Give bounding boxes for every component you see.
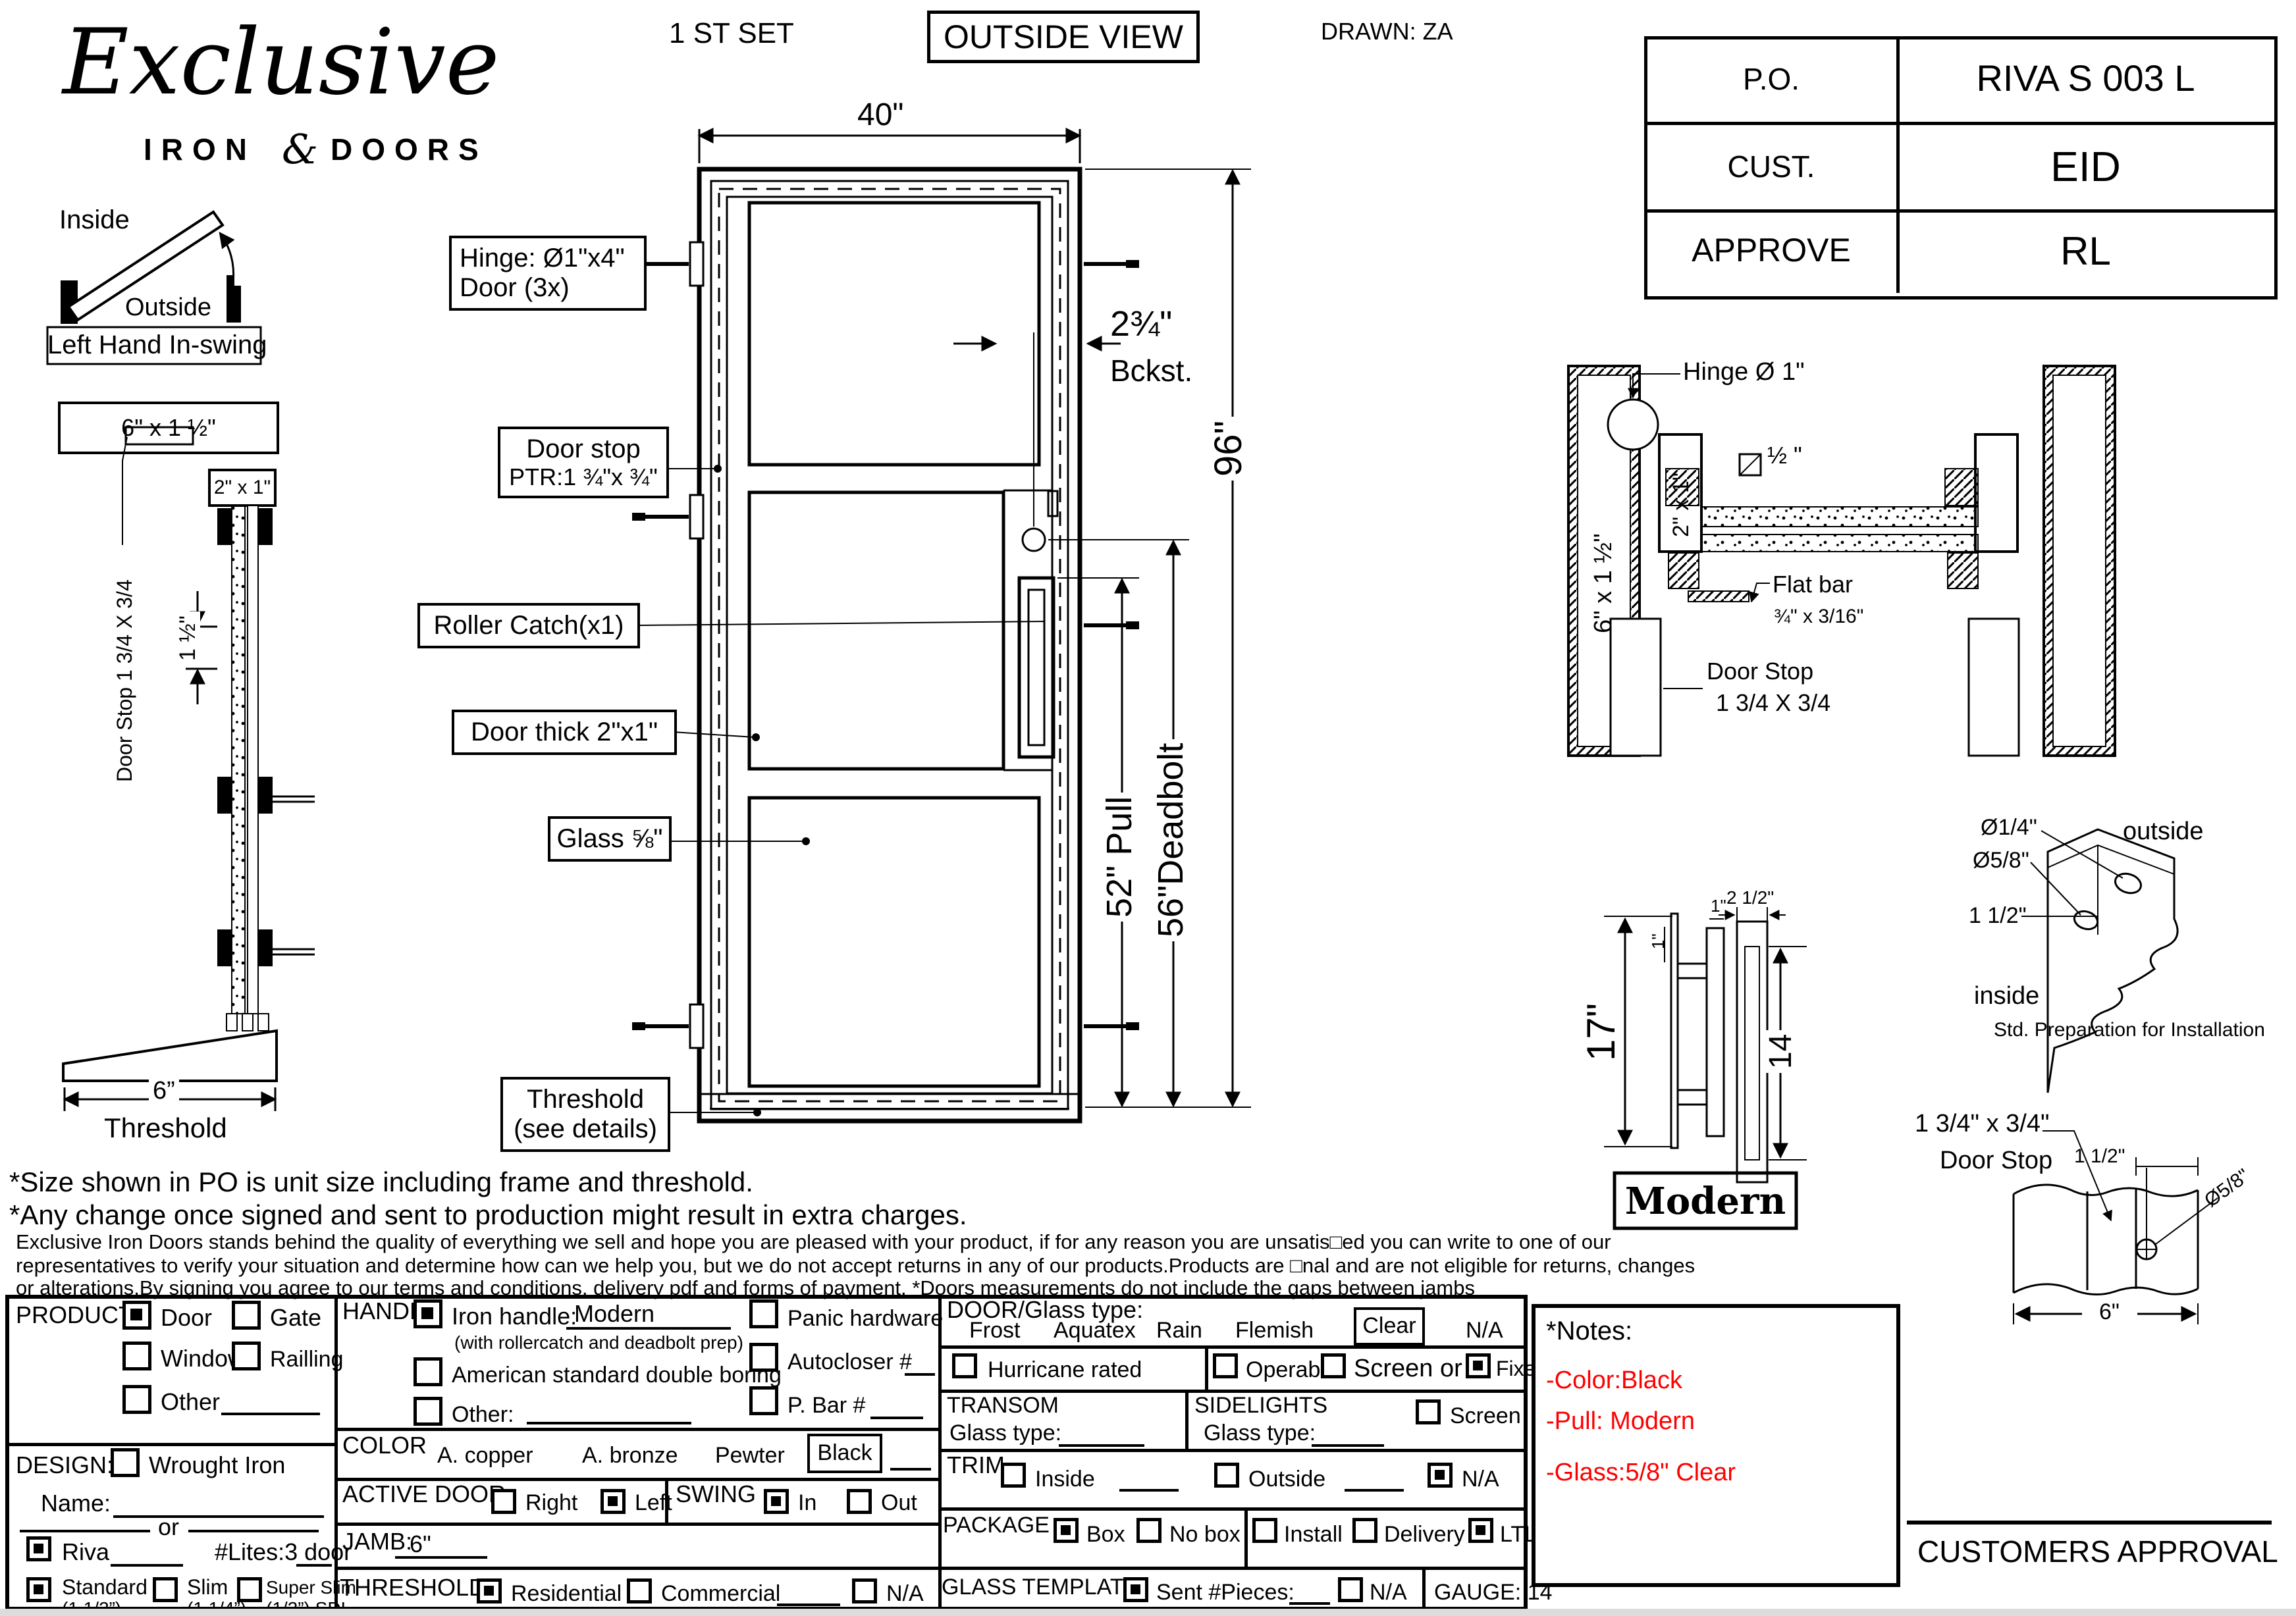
doorglass-na-option[interactable]: N/A xyxy=(1466,1318,1503,1343)
outside-view-label: OUTSIDE VIEW xyxy=(930,14,1196,60)
handle-american-checkbox[interactable] xyxy=(414,1357,442,1386)
activedoor-left-label: Left xyxy=(635,1490,672,1515)
threshold-residential-checkbox[interactable] xyxy=(477,1578,502,1603)
trim-inside-checkbox[interactable] xyxy=(1001,1463,1026,1488)
design-lites-input-line[interactable] xyxy=(296,1564,332,1567)
package-box-label: Box xyxy=(1086,1522,1125,1547)
product-other-label: Other xyxy=(161,1389,220,1415)
door-deadbolt-dim: 56"Deadbolt xyxy=(1151,739,1190,941)
design-riva-input-line[interactable] xyxy=(111,1564,183,1567)
note-glass: -Glass:5/8" Clear xyxy=(1546,1459,1736,1487)
product-railing-checkbox[interactable] xyxy=(232,1342,261,1370)
package-title: PACKAGE xyxy=(943,1513,1050,1538)
handle-width-dim: 2 1/2" xyxy=(1726,887,1774,908)
door-width-dim: 40" xyxy=(853,97,907,133)
logo-ampersand-icon: & xyxy=(282,126,318,172)
trim-outside-input-line[interactable] xyxy=(1345,1489,1404,1492)
approve-value: RL xyxy=(1903,229,2268,273)
design-name-input-line[interactable] xyxy=(113,1515,324,1518)
handle-iron-value[interactable]: Modern xyxy=(574,1301,654,1327)
install-dim-quarter: Ø1/4" xyxy=(1981,815,2037,840)
door-elevation-drawing xyxy=(632,129,1251,1121)
form-line xyxy=(938,1567,1528,1570)
color-pewter-option[interactable]: Pewter xyxy=(715,1443,785,1468)
handle-iron-note: (with rollercatch and deadbolt prep) xyxy=(454,1332,743,1353)
hinge-label-2: Door (3x) xyxy=(460,273,636,303)
door-backset-label: Bckst. xyxy=(1110,354,1192,388)
left-doorstop-label: Door Stop 1 3/4 X 3/4 xyxy=(113,579,137,782)
door-backset-dim: 2¾" xyxy=(1110,304,1172,344)
disclaimer-line3: Exclusive Iron Doors stands behind the q… xyxy=(16,1231,1611,1254)
design-riva-label: Riva xyxy=(62,1539,109,1565)
activedoor-left-checkbox[interactable] xyxy=(601,1489,626,1514)
doorglass-aquatex-option[interactable]: Aquatex xyxy=(1054,1318,1136,1343)
swing-outside-label: Outside xyxy=(125,294,211,322)
handle-autocloser-checkbox[interactable] xyxy=(749,1343,778,1372)
product-railing-label: Railling xyxy=(270,1347,344,1372)
trim-inside-input-line[interactable] xyxy=(1119,1489,1179,1492)
roller-label: Roller Catch(x1) xyxy=(424,611,633,640)
install-inside-label: inside xyxy=(1974,982,2039,1010)
doorglass-flemish-option[interactable]: Flemish xyxy=(1235,1318,1314,1343)
product-door-label: Door xyxy=(161,1305,212,1331)
hinge-label-1: Hinge: Ø1"x4" xyxy=(460,244,636,273)
handle-pbar-checkbox[interactable] xyxy=(749,1386,778,1415)
form-line xyxy=(1422,1567,1426,1611)
handle-other-checkbox[interactable] xyxy=(414,1397,442,1426)
jamb-input-line[interactable] xyxy=(395,1556,487,1559)
handle-iron-label: Iron handle: xyxy=(452,1303,577,1330)
glasstemplate-sent-checkbox[interactable] xyxy=(1123,1577,1148,1602)
install-outside-label: outside xyxy=(2123,818,2204,846)
doorstop-label-2: PTR:1 ¾"x ¾" xyxy=(504,464,662,490)
notes-title: *Notes: xyxy=(1546,1316,1632,1346)
transom-glass-input-line[interactable] xyxy=(1059,1444,1144,1447)
logo-iron: IRON xyxy=(144,133,256,167)
handle-autocloser-label: Autocloser # xyxy=(788,1349,912,1374)
outside-view-box: OUTSIDE VIEW xyxy=(927,11,1200,63)
swing-in-checkbox[interactable] xyxy=(764,1489,789,1514)
note-color: -Color:Black xyxy=(1546,1367,1682,1395)
handle-name: Modern xyxy=(1615,1181,1796,1222)
doorglass-selected-label: Clear xyxy=(1356,1310,1422,1342)
jamb-doorstop-label: Door Stop xyxy=(1707,658,1813,685)
threshold-label-1: Threshold xyxy=(507,1085,664,1114)
trim-inside-label: Inside xyxy=(1035,1467,1095,1492)
door-pull-dim: 52" Pull xyxy=(1100,793,1139,922)
stopdetail-name: Door Stop xyxy=(1940,1147,2052,1175)
stopdetail-size: 1 3/4" x 3/4" xyxy=(1915,1110,2049,1138)
po-table-line xyxy=(1896,36,1900,293)
po-value: RIVA S 003 L xyxy=(1903,58,2268,99)
design-standard-checkbox[interactable] xyxy=(26,1577,51,1602)
handle-height-dim: 17" xyxy=(1579,999,1623,1065)
screen-or-label: Screen or xyxy=(1354,1355,1462,1383)
hinge-label-box: Hinge: Ø1"x4" Door (3x) xyxy=(449,236,647,311)
product-door-checkbox[interactable] xyxy=(122,1301,151,1330)
note-pull: -Pull: Modern xyxy=(1546,1407,1695,1436)
trim-outside-checkbox[interactable] xyxy=(1214,1463,1239,1488)
left-threshold-caption: Threshold xyxy=(104,1112,227,1143)
threshold-title: THRESHOLD xyxy=(340,1575,486,1601)
package-nobox-checkbox[interactable] xyxy=(1136,1518,1161,1543)
package-delivery-checkbox[interactable] xyxy=(1352,1518,1377,1543)
threshold-commercial-label: Commercial xyxy=(661,1581,780,1606)
color-selected-label: Black xyxy=(810,1436,880,1469)
thick-label-box: Door thick 2"x1" xyxy=(452,710,677,755)
product-title: PRODUCT: xyxy=(16,1302,137,1328)
jamb-title: JAMB: xyxy=(342,1528,412,1555)
package-delivery-label: Delivery xyxy=(1384,1522,1465,1547)
fixed-checkbox[interactable] xyxy=(1466,1353,1491,1378)
approve-label: APPROVE xyxy=(1653,232,1890,269)
doorglass-rain-option[interactable]: Rain xyxy=(1156,1318,1202,1343)
design-riva-checkbox[interactable] xyxy=(26,1536,51,1561)
thick-label: Door thick 2"x1" xyxy=(458,717,670,747)
handle-iron-checkbox[interactable] xyxy=(414,1299,442,1328)
left-header-size: 6" x 1 ½" xyxy=(59,415,278,441)
package-install-checkbox[interactable] xyxy=(1252,1518,1277,1543)
sidelights-screen-checkbox[interactable] xyxy=(1416,1399,1441,1424)
jamb-flatbar-size: ¾" x 3/16" xyxy=(1774,606,1863,628)
trim-na-checkbox[interactable] xyxy=(1428,1463,1453,1488)
disclaimer-line1: *Size shown in PO is unit size including… xyxy=(9,1166,753,1197)
drawn-label: DRAWN: ZA xyxy=(1321,18,1453,45)
threshold-label-box: Threshold (see details) xyxy=(500,1077,670,1152)
swing-inside-label: Inside xyxy=(59,205,130,235)
color-input-line[interactable] xyxy=(890,1468,931,1471)
install-dim-oneandhalf: 1 1/2" xyxy=(1969,903,2027,928)
glasstemplate-sent-label: Sent #Pieces: xyxy=(1156,1580,1295,1605)
swing-caption: Left Hand In-swing xyxy=(47,330,261,360)
threshold-residential-label: Residential xyxy=(511,1581,622,1606)
product-gate-label: Gate xyxy=(270,1305,321,1331)
jamb-size-label: 6" x 1 ½" xyxy=(1589,533,1618,633)
form-line xyxy=(938,1507,1528,1511)
handle-autocloser-input-line[interactable] xyxy=(905,1373,935,1376)
package-install-label: Install xyxy=(1284,1522,1343,1547)
design-or-line xyxy=(20,1530,150,1532)
glasstemplate-input-line[interactable] xyxy=(1289,1602,1330,1605)
design-standard-label: Standard xyxy=(62,1576,147,1600)
design-superslim-checkbox[interactable] xyxy=(237,1577,262,1602)
door-height-dim: 96" xyxy=(1208,417,1250,481)
doorstop-label-box: Door stop PTR:1 ¾"x ¾" xyxy=(498,427,669,498)
handle-panic-checkbox[interactable] xyxy=(749,1299,778,1328)
jamb-value[interactable]: 6" xyxy=(410,1531,431,1557)
product-window-checkbox[interactable] xyxy=(122,1342,151,1370)
form-line xyxy=(1185,1390,1188,1449)
package-box-checkbox[interactable] xyxy=(1054,1518,1079,1543)
package-ltl-checkbox[interactable] xyxy=(1468,1518,1493,1543)
sidelights-title: SIDELIGHTS xyxy=(1194,1393,1327,1418)
po-table-line xyxy=(1644,122,2274,125)
door-spec-sheet: Exclusive IRON & DOORS 1 ST SET OUTSIDE … xyxy=(0,0,2296,1616)
install-dim-fiveeighth: Ø5/8" xyxy=(1973,848,2029,873)
form-line xyxy=(938,1295,942,1611)
form-line xyxy=(334,1523,938,1526)
form-line xyxy=(1244,1507,1248,1567)
design-or-label: or xyxy=(158,1514,179,1540)
doorglass-selected-box[interactable]: Clear xyxy=(1354,1307,1425,1345)
product-gate-checkbox[interactable] xyxy=(232,1301,261,1330)
stopdetail-dim3: 6" xyxy=(2095,1299,2123,1324)
design-wrought-label: Wrought Iron xyxy=(149,1452,285,1478)
disclaimer-line2: *Any change once signed and sent to prod… xyxy=(9,1199,967,1230)
sidelights-glass-label: Glass type: xyxy=(1204,1421,1316,1446)
jamb-weld-label: ½ " xyxy=(1767,442,1802,469)
color-title: COLOR xyxy=(342,1432,427,1459)
left-gap-dim: 1 ½" xyxy=(175,612,200,665)
transom-glass-label: Glass type: xyxy=(949,1421,1061,1446)
customers-approval-label: CUSTOMERS APPROVAL xyxy=(1917,1535,2278,1569)
activedoor-right-label: Right xyxy=(525,1490,577,1515)
glass-label: Glass ⅝" xyxy=(554,824,665,854)
glasstemplate-na-label: N/A xyxy=(1370,1580,1407,1605)
swing-out-checkbox[interactable] xyxy=(847,1489,872,1514)
disclaimer-line4: representatives to verify your situation… xyxy=(16,1255,1695,1278)
design-or-line xyxy=(188,1530,319,1532)
left-tube-size: 2" x 1" xyxy=(209,477,275,499)
doorstop-label-1: Door stop xyxy=(504,434,662,464)
po-table-line xyxy=(1644,209,2274,213)
handle-panic-label: Panic hardware xyxy=(788,1306,943,1331)
color-bronze-option[interactable]: A. bronze xyxy=(582,1443,678,1468)
swing-title: SWING xyxy=(676,1481,756,1507)
jamb-flatbar-label: Flat bar xyxy=(1773,571,1853,598)
form-line xyxy=(334,1428,938,1431)
threshold-commercial-input-line[interactable] xyxy=(777,1603,840,1606)
design-lites-label: #Lites:3 door xyxy=(215,1539,352,1565)
po-label: P.O. xyxy=(1653,63,1890,97)
transom-title: TRANSOM xyxy=(947,1393,1059,1418)
color-selected-box[interactable]: Black xyxy=(807,1434,882,1473)
handle-grip-dim: 14 xyxy=(1763,1030,1799,1073)
jamb-hinge-label: Hinge Ø 1" xyxy=(1683,358,1805,386)
roller-label-box: Roller Catch(x1) xyxy=(417,603,640,648)
form-line xyxy=(938,1345,1528,1349)
glasstemplate-title: GLASS TEMPLATE xyxy=(942,1575,1138,1600)
design-name-label: Name: xyxy=(41,1490,111,1517)
threshold-na-label: N/A xyxy=(886,1581,924,1606)
product-other-checkbox[interactable] xyxy=(122,1385,151,1414)
design-title: DESIGN: xyxy=(16,1452,113,1478)
form-line xyxy=(938,1449,1528,1452)
design-slim-checkbox[interactable] xyxy=(153,1577,178,1602)
activedoor-right-checkbox[interactable] xyxy=(491,1489,516,1514)
handle-american-label: American standard double boring xyxy=(452,1363,782,1388)
logo-doors: DOORS xyxy=(331,133,488,167)
threshold-na-checkbox[interactable] xyxy=(852,1578,877,1603)
handle-iron-input-line[interactable] xyxy=(566,1327,731,1330)
handle-other-input-line[interactable] xyxy=(527,1422,691,1424)
installation-prep-drawing xyxy=(2021,829,2177,1093)
left-width-dim: 6” xyxy=(149,1077,179,1105)
handle-dim-1b: 1" xyxy=(1711,897,1726,916)
form-line xyxy=(5,1443,334,1446)
left-threshold-section-drawing xyxy=(59,403,315,1111)
trim-title: TRIM xyxy=(947,1452,1005,1478)
form-line xyxy=(1205,1345,1208,1390)
stopdetail-dim1: 1 1/2" xyxy=(2074,1145,2125,1168)
jamb-tube-label: 2" x 1" xyxy=(1669,473,1694,537)
hurricane-checkbox[interactable] xyxy=(952,1353,977,1378)
form-line xyxy=(334,1567,938,1570)
package-nobox-label: No box xyxy=(1169,1522,1241,1547)
install-caption: Std. Preparation for Installation xyxy=(1994,1019,2265,1041)
handle-pbar-input-line[interactable] xyxy=(870,1417,923,1419)
logo-script: Exclusive xyxy=(63,12,499,114)
glasstemplate-na-checkbox[interactable] xyxy=(1338,1577,1363,1602)
cust-value: EID xyxy=(1903,143,2268,191)
product-other-input-line[interactable] xyxy=(221,1413,320,1415)
set-label: 1 ST SET xyxy=(669,17,794,49)
color-copper-option[interactable]: A. copper xyxy=(437,1443,533,1468)
handle-dim-1a: 1" xyxy=(1649,933,1668,949)
bottom-strip xyxy=(0,1609,2296,1616)
activedoor-title: ACTIVE DOOR xyxy=(342,1481,506,1507)
design-slim-label: Slim xyxy=(187,1576,228,1600)
doorglass-frost-option[interactable]: Frost xyxy=(969,1318,1020,1343)
cust-label: CUST. xyxy=(1653,150,1890,184)
threshold-label-2: (see details) xyxy=(507,1114,664,1144)
trim-outside-label: Outside xyxy=(1248,1467,1325,1492)
screen-or-checkbox[interactable] xyxy=(1321,1353,1346,1378)
jamb-horizontal-section-drawing xyxy=(1568,366,2115,756)
jamb-doorstop-size: 1 3/4 X 3/4 xyxy=(1716,690,1830,716)
glass-label-box: Glass ⅝" xyxy=(548,816,672,862)
trim-na-label: N/A xyxy=(1462,1467,1499,1492)
sidelights-glass-input-line[interactable] xyxy=(1312,1444,1384,1447)
notes-box xyxy=(1532,1304,1900,1587)
swing-out-label: Out xyxy=(881,1490,917,1515)
handle-pbar-label: P. Bar # xyxy=(788,1393,865,1418)
swing-in-label: In xyxy=(798,1490,816,1515)
operable-checkbox[interactable] xyxy=(1213,1353,1238,1378)
design-wrought-checkbox[interactable] xyxy=(111,1448,140,1477)
threshold-commercial-checkbox[interactable] xyxy=(627,1578,652,1603)
sidelights-screen-label: Screen xyxy=(1450,1403,1521,1428)
hurricane-label: Hurricane rated xyxy=(988,1357,1142,1382)
handle-other-label: Other: xyxy=(452,1402,514,1427)
